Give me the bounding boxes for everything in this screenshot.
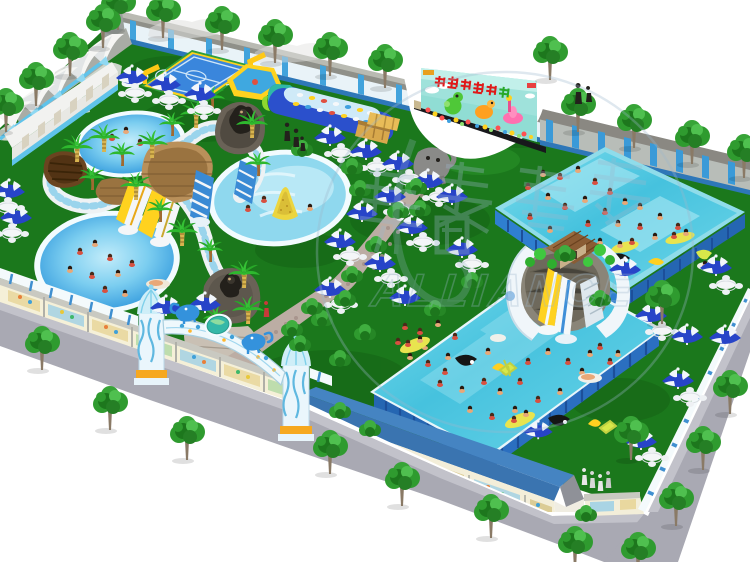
svg-text:ALLIANCE: ALLIANCE [368,264,639,316]
